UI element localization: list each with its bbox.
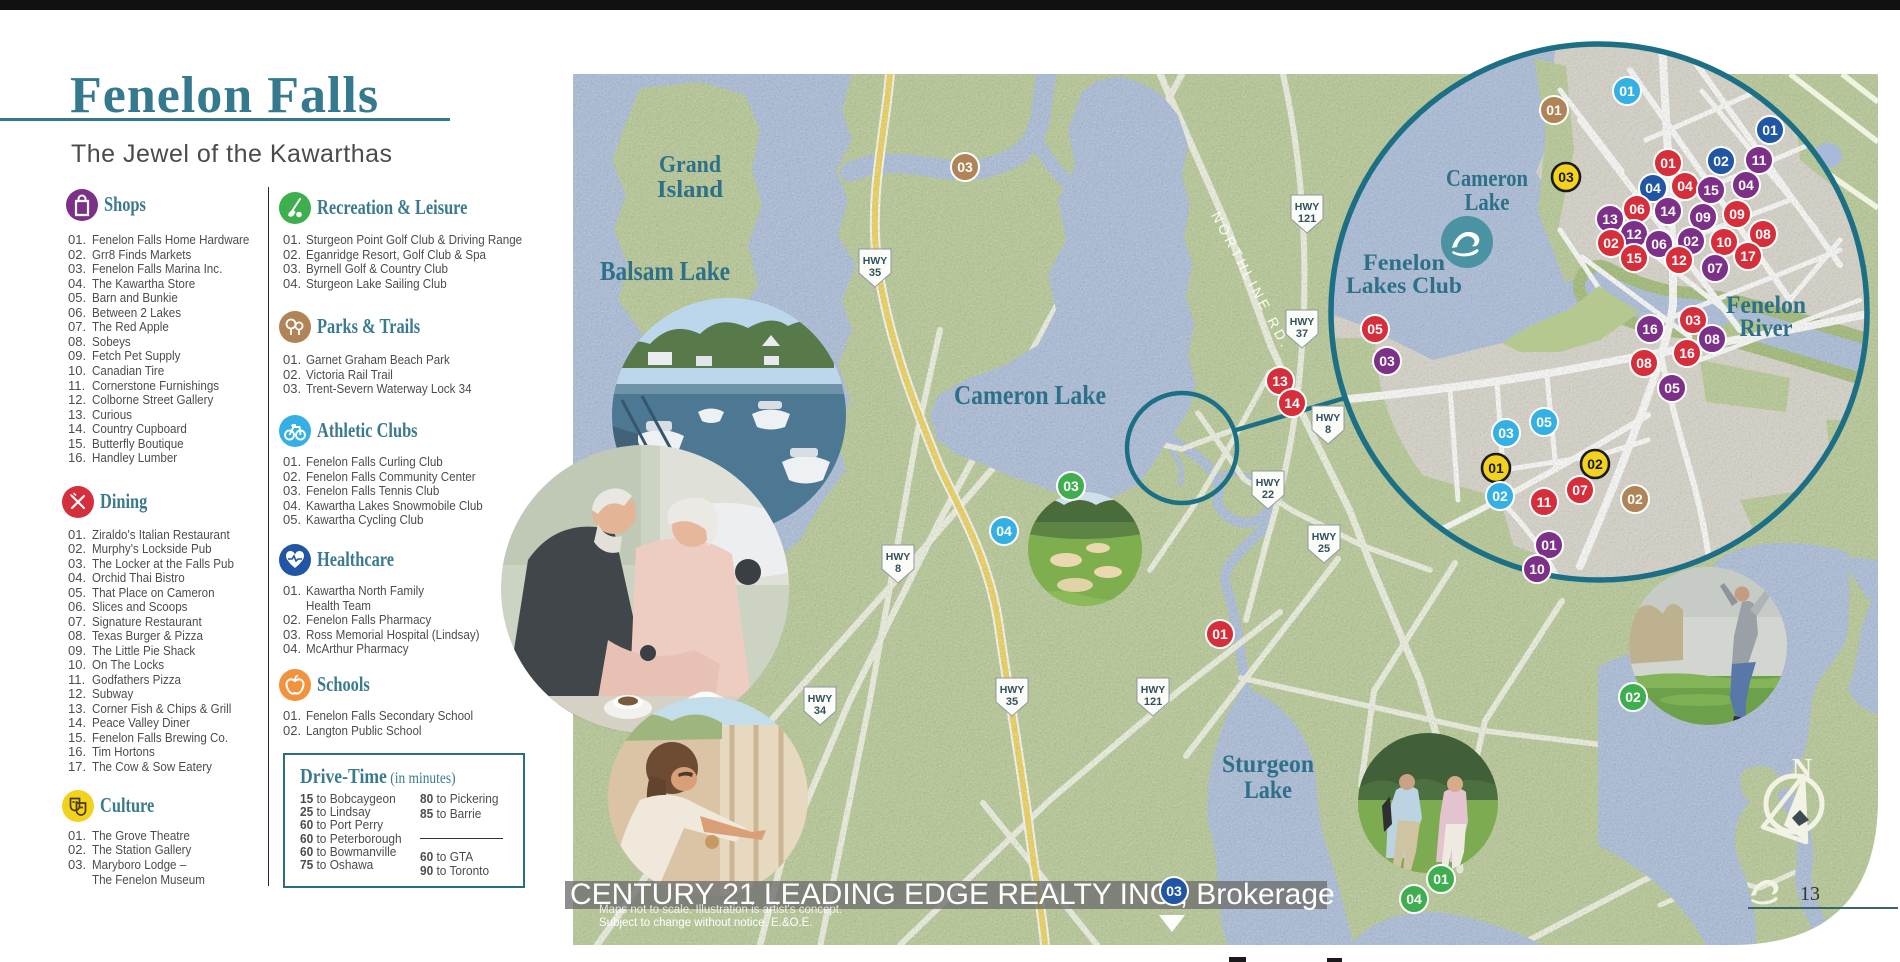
svg-text:HWY: HWY [1316, 412, 1341, 424]
svg-text:10: 10 [1529, 561, 1545, 577]
svg-text:13: 13 [1272, 373, 1288, 389]
svg-text:03: 03 [1498, 425, 1514, 441]
svg-text:14: 14 [1284, 395, 1300, 411]
svg-text:HWY: HWY [1295, 201, 1320, 213]
svg-text:09: 09 [1695, 209, 1711, 225]
svg-text:25: 25 [1318, 543, 1330, 555]
svg-text:09: 09 [1729, 206, 1745, 222]
svg-text:04: 04 [1406, 891, 1422, 907]
svg-text:07: 07 [1572, 482, 1588, 498]
svg-text:02: 02 [1603, 235, 1619, 251]
svg-text:03: 03 [1379, 353, 1395, 369]
svg-text:Cameron: Cameron [1446, 166, 1528, 192]
svg-text:15: 15 [1703, 182, 1719, 198]
svg-text:37: 37 [1296, 328, 1308, 340]
svg-text:HWY: HWY [1290, 316, 1315, 328]
svg-text:05: 05 [1536, 414, 1552, 430]
svg-text:02: 02 [1492, 488, 1508, 504]
svg-text:06: 06 [1629, 201, 1645, 217]
svg-text:River: River [1740, 315, 1793, 342]
svg-text:16: 16 [1679, 345, 1695, 361]
svg-text:12: 12 [1626, 226, 1642, 242]
svg-text:04: 04 [1677, 178, 1693, 194]
svg-text:03: 03 [1063, 478, 1079, 494]
svg-text:8: 8 [1325, 424, 1331, 436]
svg-text:11: 11 [1752, 152, 1767, 168]
svg-text:34: 34 [814, 705, 827, 717]
svg-text:Island: Island [657, 177, 724, 203]
svg-text:15: 15 [1626, 250, 1642, 266]
svg-text:05: 05 [1664, 380, 1680, 396]
svg-text:03: 03 [957, 159, 973, 175]
svg-text:01: 01 [1212, 626, 1228, 642]
svg-text:07: 07 [1707, 260, 1723, 276]
svg-text:17: 17 [1740, 248, 1756, 264]
svg-text:01: 01 [1762, 122, 1778, 138]
svg-text:01: 01 [1433, 871, 1449, 887]
svg-text:Lake: Lake [1244, 777, 1292, 804]
svg-text:03: 03 [1558, 169, 1574, 185]
svg-text:08: 08 [1636, 355, 1652, 371]
svg-text:01: 01 [1488, 460, 1504, 476]
svg-text:05: 05 [1367, 321, 1383, 337]
svg-text:Lakes Club: Lakes Club [1346, 273, 1462, 298]
svg-text:121: 121 [1144, 696, 1162, 708]
svg-text:Fenelon: Fenelon [1363, 250, 1445, 275]
svg-text:Grand: Grand [659, 152, 722, 178]
svg-text:02: 02 [1627, 491, 1643, 507]
svg-text:35: 35 [869, 267, 881, 279]
svg-text:HWY: HWY [1000, 684, 1025, 696]
svg-text:Sturgeon: Sturgeon [1222, 751, 1314, 778]
svg-text:Cameron Lake: Cameron Lake [954, 380, 1106, 410]
svg-text:Lake: Lake [1465, 190, 1510, 216]
svg-text:08: 08 [1755, 226, 1771, 242]
svg-text:04: 04 [996, 523, 1012, 539]
svg-text:02: 02 [1713, 153, 1729, 169]
svg-text:HWY: HWY [1141, 684, 1166, 696]
svg-text:HWY: HWY [808, 693, 833, 705]
svg-text:04: 04 [1738, 177, 1754, 193]
svg-text:13: 13 [1800, 883, 1820, 905]
svg-text:8: 8 [895, 563, 901, 575]
svg-text:121: 121 [1298, 213, 1316, 225]
svg-text:10: 10 [1716, 234, 1732, 250]
svg-text:Maps not to scale. Illustratio: Maps not to scale. Illustration is artis… [599, 904, 842, 916]
svg-text:14: 14 [1660, 203, 1676, 219]
svg-text:HWY: HWY [1312, 531, 1337, 543]
svg-text:Balsam Lake: Balsam Lake [600, 256, 730, 286]
svg-text:02: 02 [1587, 456, 1603, 472]
svg-text:HWY: HWY [863, 255, 888, 267]
svg-text:22: 22 [1262, 489, 1274, 501]
svg-text:06: 06 [1651, 236, 1667, 252]
svg-text:01: 01 [1660, 155, 1676, 171]
svg-text:03: 03 [1166, 883, 1182, 899]
svg-text:01: 01 [1619, 83, 1635, 99]
svg-text:08: 08 [1704, 331, 1720, 347]
svg-text:12: 12 [1671, 252, 1687, 268]
svg-text:35: 35 [1006, 696, 1018, 708]
svg-text:13: 13 [1602, 211, 1618, 227]
svg-text:16: 16 [1642, 321, 1658, 337]
svg-text:N: N [1792, 754, 1812, 785]
svg-text:01: 01 [1546, 102, 1562, 118]
svg-text:01: 01 [1541, 537, 1557, 553]
svg-text:04: 04 [1645, 180, 1661, 196]
svg-text:11: 11 [1537, 494, 1552, 510]
svg-text:HWY: HWY [886, 551, 911, 563]
svg-text:Subject to change without noti: Subject to change without notice. E.&O.E… [599, 917, 813, 929]
svg-text:HWY: HWY [1256, 477, 1281, 489]
svg-text:02: 02 [1625, 689, 1641, 705]
svg-text:03: 03 [1685, 312, 1701, 328]
